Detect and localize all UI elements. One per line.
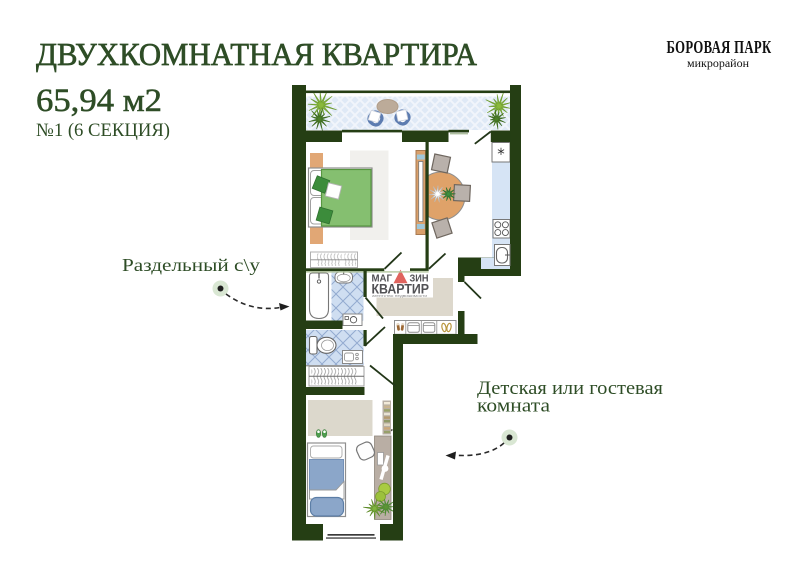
svg-text:БОРОВАЯ ПАРК: БОРОВАЯ ПАРК bbox=[667, 38, 772, 58]
svg-text:65,94 м2: 65,94 м2 bbox=[36, 83, 162, 119]
svg-text:микрорайон: микрорайон bbox=[687, 58, 749, 70]
svg-text:комната: комната bbox=[477, 397, 550, 417]
svg-text:агентство недвижимости: агентство недвижимости bbox=[372, 293, 427, 298]
svg-text:Раздельный с\у: Раздельный с\у bbox=[122, 255, 260, 275]
svg-text:№1 (6 СЕКЦИЯ): №1 (6 СЕКЦИЯ) bbox=[36, 120, 170, 141]
svg-text:ДВУХКОМНАТНАЯ КВАРТИРА: ДВУХКОМНАТНАЯ КВАРТИРА bbox=[36, 37, 477, 72]
